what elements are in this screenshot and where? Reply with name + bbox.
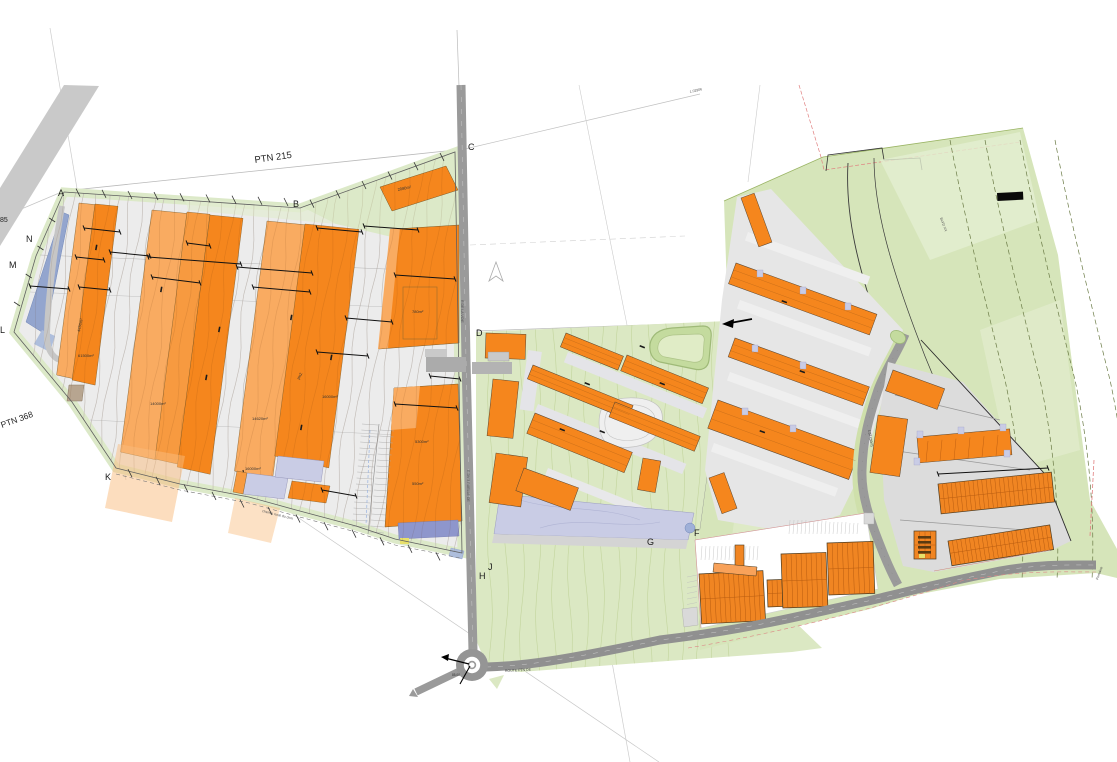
svg-text:85: 85 [0,217,8,224]
svg-text:R DV 3 RUELLE DE: R DV 3 RUELLE DE [466,470,470,502]
svg-text:5300m²: 5300m² [415,439,429,444]
svg-text:K: K [105,472,111,482]
svg-text:14620m²: 14620m² [252,416,268,421]
svg-text:16000m²: 16000m² [245,466,261,471]
svg-text:L: L [0,325,5,335]
svg-text:16000m²: 16000m² [322,394,338,399]
svg-text:H: H [479,571,486,581]
svg-text:D: D [476,328,483,338]
svg-text:J: J [488,562,493,572]
svg-text:14000m²: 14000m² [150,401,166,406]
svg-text:R DE LA VOIE: R DE LA VOIE [460,300,464,323]
svg-text:B: B [293,199,299,209]
svg-text:85.00: 85.00 [452,673,460,677]
svg-text:780m²: 780m² [412,309,424,314]
svg-text:N: N [26,234,33,244]
svg-text:550m²: 550m² [412,481,424,486]
svg-text:G: G [647,537,654,547]
svg-text:61500m²: 61500m² [78,353,94,358]
svg-text:C: C [468,142,475,152]
svg-text:F: F [694,528,700,538]
svg-text:A: A [58,188,64,198]
svg-text:M: M [9,260,17,270]
